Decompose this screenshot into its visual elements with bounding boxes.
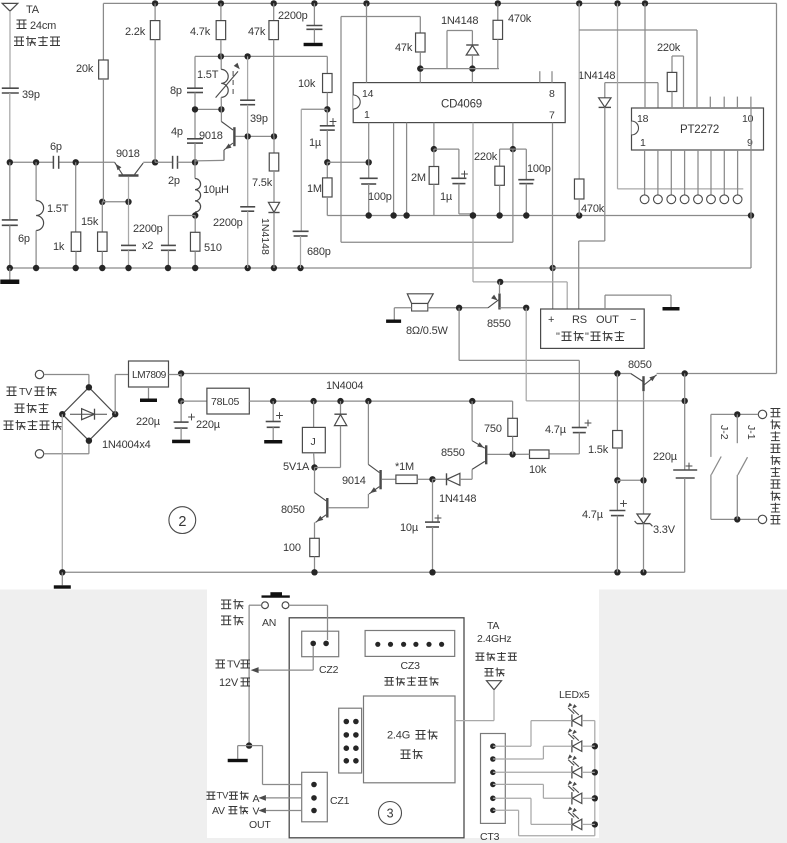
svg-text:14: 14 [362,88,374,100]
svg-text:1µ: 1µ [440,191,453,203]
svg-text:10µ: 10µ [400,522,419,534]
svg-text:9014: 9014 [342,475,366,487]
svg-text:8050: 8050 [628,359,652,371]
svg-text:x2: x2 [142,240,153,252]
svg-text:LM7809: LM7809 [132,370,167,381]
svg-text:220µ: 220µ [196,419,221,431]
svg-text:12V: 12V [219,677,239,689]
svg-text:J-1: J-1 [745,425,757,440]
svg-text:4p: 4p [171,126,183,138]
svg-text:20k: 20k [76,63,94,75]
svg-text:680p: 680p [307,246,331,258]
svg-text:2.2k: 2.2k [125,26,146,38]
svg-text:1M: 1M [307,183,322,195]
svg-text:": " [556,331,560,343]
svg-text:8Ω/0.5W: 8Ω/0.5W [406,325,448,337]
svg-text:8: 8 [549,88,555,100]
svg-text:3.3V: 3.3V [653,524,676,536]
svg-text:2200p: 2200p [278,10,308,22]
svg-text:2M: 2M [411,172,426,184]
svg-text:750: 750 [484,423,502,435]
svg-text:1N4004: 1N4004 [326,380,363,392]
svg-text:2.4G: 2.4G [387,730,410,742]
svg-text:100p: 100p [527,163,551,175]
svg-text:8p: 8p [170,85,182,97]
svg-text:*1M: *1M [395,461,414,473]
svg-text:18: 18 [637,113,649,125]
svg-text:1N4148: 1N4148 [578,70,615,82]
svg-text:100p: 100p [368,191,392,203]
svg-text:4.7µ: 4.7µ [545,424,567,436]
svg-text:1.5T: 1.5T [197,69,219,81]
svg-text:470k: 470k [581,203,605,215]
svg-text:OUT: OUT [596,314,619,326]
svg-text:7.5k: 7.5k [252,177,273,189]
svg-text:39p: 39p [22,89,40,101]
svg-text:AV: AV [212,805,225,817]
svg-text:J-2: J-2 [718,425,730,440]
svg-text:6p: 6p [50,141,62,153]
svg-text:TV: TV [227,659,240,671]
svg-text:220µ: 220µ [136,416,161,428]
svg-text:10: 10 [742,113,754,125]
svg-text:AN: AN [262,617,276,629]
svg-text:5V1A: 5V1A [283,461,310,473]
svg-text:1: 1 [364,109,370,121]
svg-text:24cm: 24cm [30,20,56,32]
svg-text:10k: 10k [298,78,316,90]
svg-text:TA: TA [487,620,499,632]
svg-text:8550: 8550 [487,318,511,330]
svg-text:9018: 9018 [116,148,140,160]
svg-text:+: + [548,314,554,326]
svg-text:6p: 6p [18,233,30,245]
svg-text:TV: TV [19,386,32,398]
svg-text:15k: 15k [81,216,99,228]
svg-text:V: V [253,806,260,818]
svg-text:510: 510 [204,242,222,254]
svg-text:1.5T: 1.5T [47,203,69,215]
svg-text:220k: 220k [474,151,498,163]
svg-text:1N4148: 1N4148 [439,493,476,505]
svg-text:PT2272: PT2272 [680,124,719,136]
svg-text:−: − [630,314,636,326]
svg-text:47k: 47k [395,42,413,54]
svg-text:2200p: 2200p [213,217,243,229]
svg-text:8550: 8550 [441,447,465,459]
svg-text:39p: 39p [250,113,268,125]
svg-text:4.7k: 4.7k [190,26,211,38]
svg-text:9018: 9018 [199,130,223,142]
svg-text:RS: RS [572,314,587,326]
svg-text:1N4148: 1N4148 [441,15,478,27]
svg-text:9: 9 [747,137,753,149]
svg-text:OUT: OUT [249,819,271,831]
svg-text:2: 2 [178,514,186,530]
svg-text:1µ: 1µ [309,137,322,149]
svg-text:1N4148: 1N4148 [259,218,271,255]
svg-text:7: 7 [549,110,555,122]
svg-text:220µ: 220µ [653,451,678,463]
svg-text:10k: 10k [529,464,547,476]
svg-text:CZ1: CZ1 [330,795,350,807]
svg-text:2.4GHz: 2.4GHz [477,633,511,645]
svg-text:470k: 470k [508,13,532,25]
svg-text:3: 3 [387,807,394,821]
svg-text:1: 1 [640,137,646,149]
svg-text:CZ3: CZ3 [401,660,421,672]
svg-text:TA: TA [26,4,40,16]
svg-text:CZ2: CZ2 [319,664,339,676]
svg-text:8050: 8050 [281,504,305,516]
svg-text:1k: 1k [53,241,65,253]
svg-text:LEDx5: LEDx5 [559,689,590,701]
svg-text:1.5k: 1.5k [588,444,609,456]
svg-text:10µH: 10µH [203,184,229,196]
svg-text:": " [585,331,589,343]
svg-text:2200p: 2200p [133,223,163,235]
svg-text:1N4004x4: 1N4004x4 [102,439,151,451]
svg-text:2p: 2p [168,175,180,187]
svg-text:CT3: CT3 [480,831,500,843]
svg-text:CD4069: CD4069 [441,99,482,111]
svg-text:J: J [311,436,316,448]
svg-text:220k: 220k [657,42,681,54]
svg-text:47k: 47k [248,26,266,38]
svg-text:4.7µ: 4.7µ [582,509,604,521]
svg-text:78L05: 78L05 [211,396,240,408]
svg-text:TV: TV [217,791,230,802]
svg-text:100: 100 [283,542,301,554]
svg-text:A: A [253,793,260,805]
